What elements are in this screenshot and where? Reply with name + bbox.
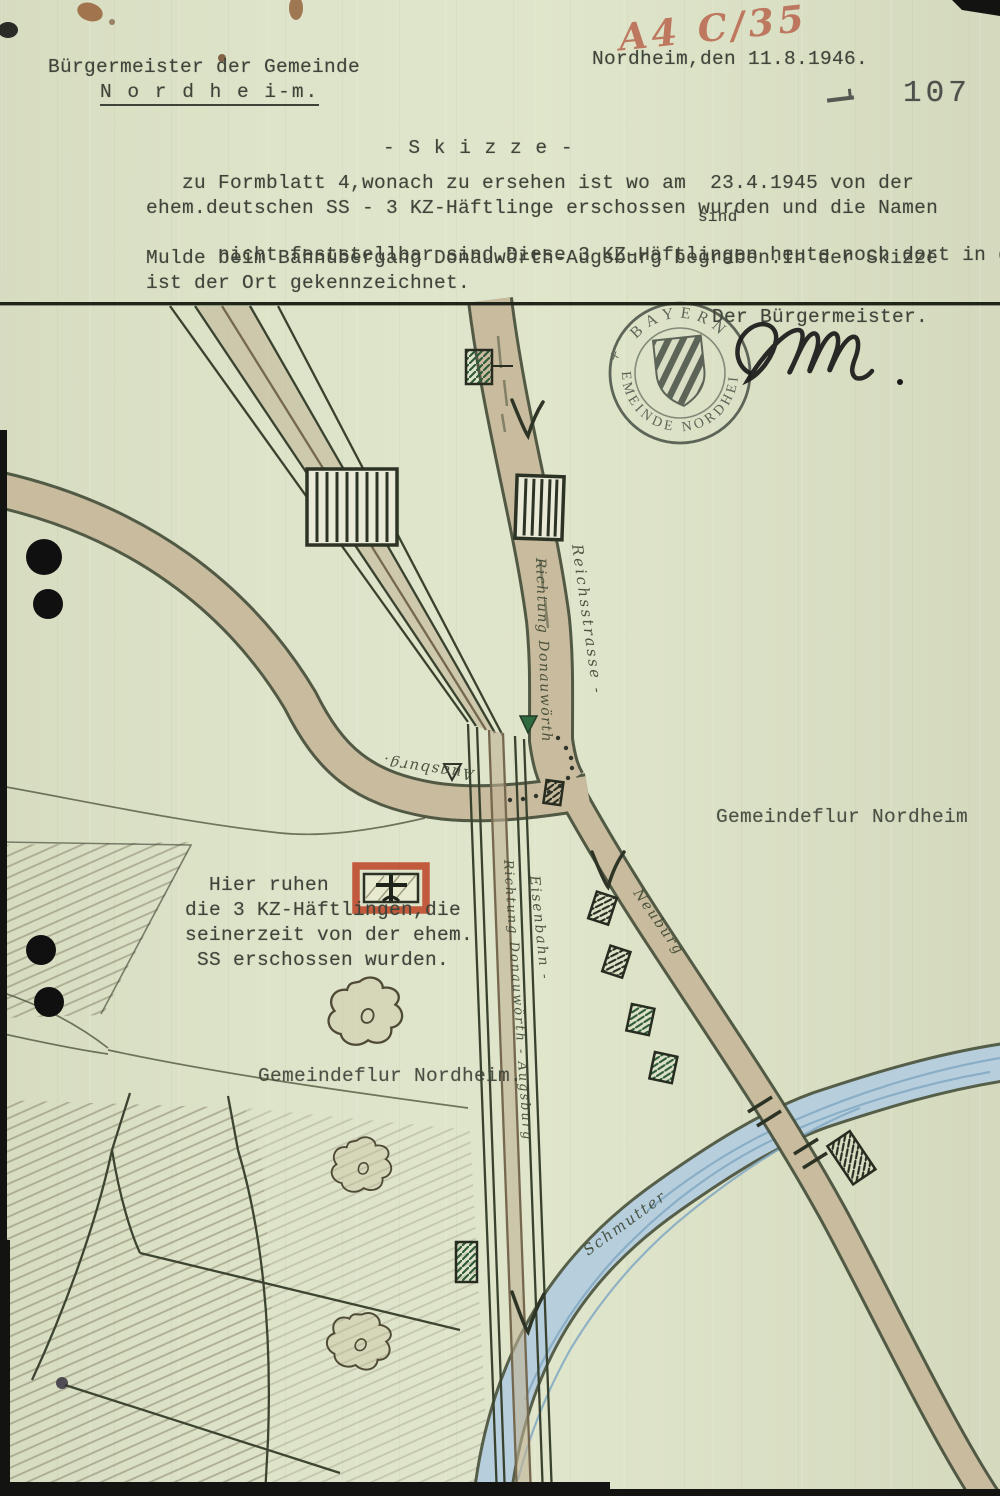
marker-box (649, 1052, 677, 1083)
punch-hole (26, 539, 62, 575)
marker-box (626, 1004, 654, 1035)
marker-box (456, 1242, 477, 1282)
body-line: ehem.deutschen SS - 3 KZ-Häftlinge ersch… (146, 197, 1000, 222)
separator-rule (0, 302, 1000, 305)
inserted-word: sind (698, 208, 738, 226)
scanned-document-page: Reichsstrasse - Richtung Donauwörth Augs… (0, 0, 1000, 1496)
grave-note-line: seinerzeit von der ehem. (185, 924, 473, 949)
river-schmutter (492, 1058, 1000, 1496)
letterhead-place: N o r d h e i-m. (100, 81, 319, 106)
mayor-signature (737, 324, 903, 385)
bavaria-shield-icon (653, 336, 708, 409)
body-line: nicht feststellbar sind.Diese 3 KZ-Häftl… (146, 222, 1000, 247)
punch-hole (34, 987, 64, 1017)
body-paragraph: zu Formblatt 4,wonach zu ersehen ist wo … (146, 172, 1000, 297)
tree-icon (329, 978, 403, 1045)
marker-box (827, 1131, 875, 1184)
punch-hole (26, 935, 56, 965)
mayor-title: Der Bürgermeister. (712, 306, 928, 328)
grave-note-line: Hier ruhen (185, 874, 473, 899)
marker-box (588, 892, 617, 925)
body-line: Mulde beim Bahnübergang Donauwörth-Augsb… (146, 247, 1000, 272)
grave-note-line: SS erschossen wurden. (185, 949, 473, 974)
rust-stain (289, 0, 303, 20)
rust-stain (109, 19, 115, 25)
marker-box (543, 780, 563, 805)
body-line: ist der Ort gekennzeichnet. (146, 272, 1000, 297)
rust-stain (75, 0, 105, 25)
label-flur-left: Gemeindeflur Nordheim. (258, 1065, 522, 1087)
page-number-stamp: 107 (903, 76, 971, 111)
level-crossing-road (515, 475, 564, 540)
grave-note-line: die 3 KZ-Häftlingen,die (185, 899, 473, 924)
road-neuburg (548, 752, 988, 1496)
body-line: zu Formblatt 4,wonach zu ersehen ist wo … (146, 172, 1000, 197)
letterhead-sender: Bürgermeister der Gemeinde (48, 56, 360, 78)
label-flur-right: Gemeindeflur Nordheim (716, 806, 968, 828)
grave-note: Hier ruhen die 3 KZ-Häftlingen,die seine… (185, 874, 473, 974)
marker-box (602, 946, 630, 978)
sketch-title: - S k i z z e - (383, 137, 574, 159)
stains (75, 0, 303, 62)
punch-hole (33, 589, 63, 619)
level-crossing-railway (307, 469, 397, 545)
